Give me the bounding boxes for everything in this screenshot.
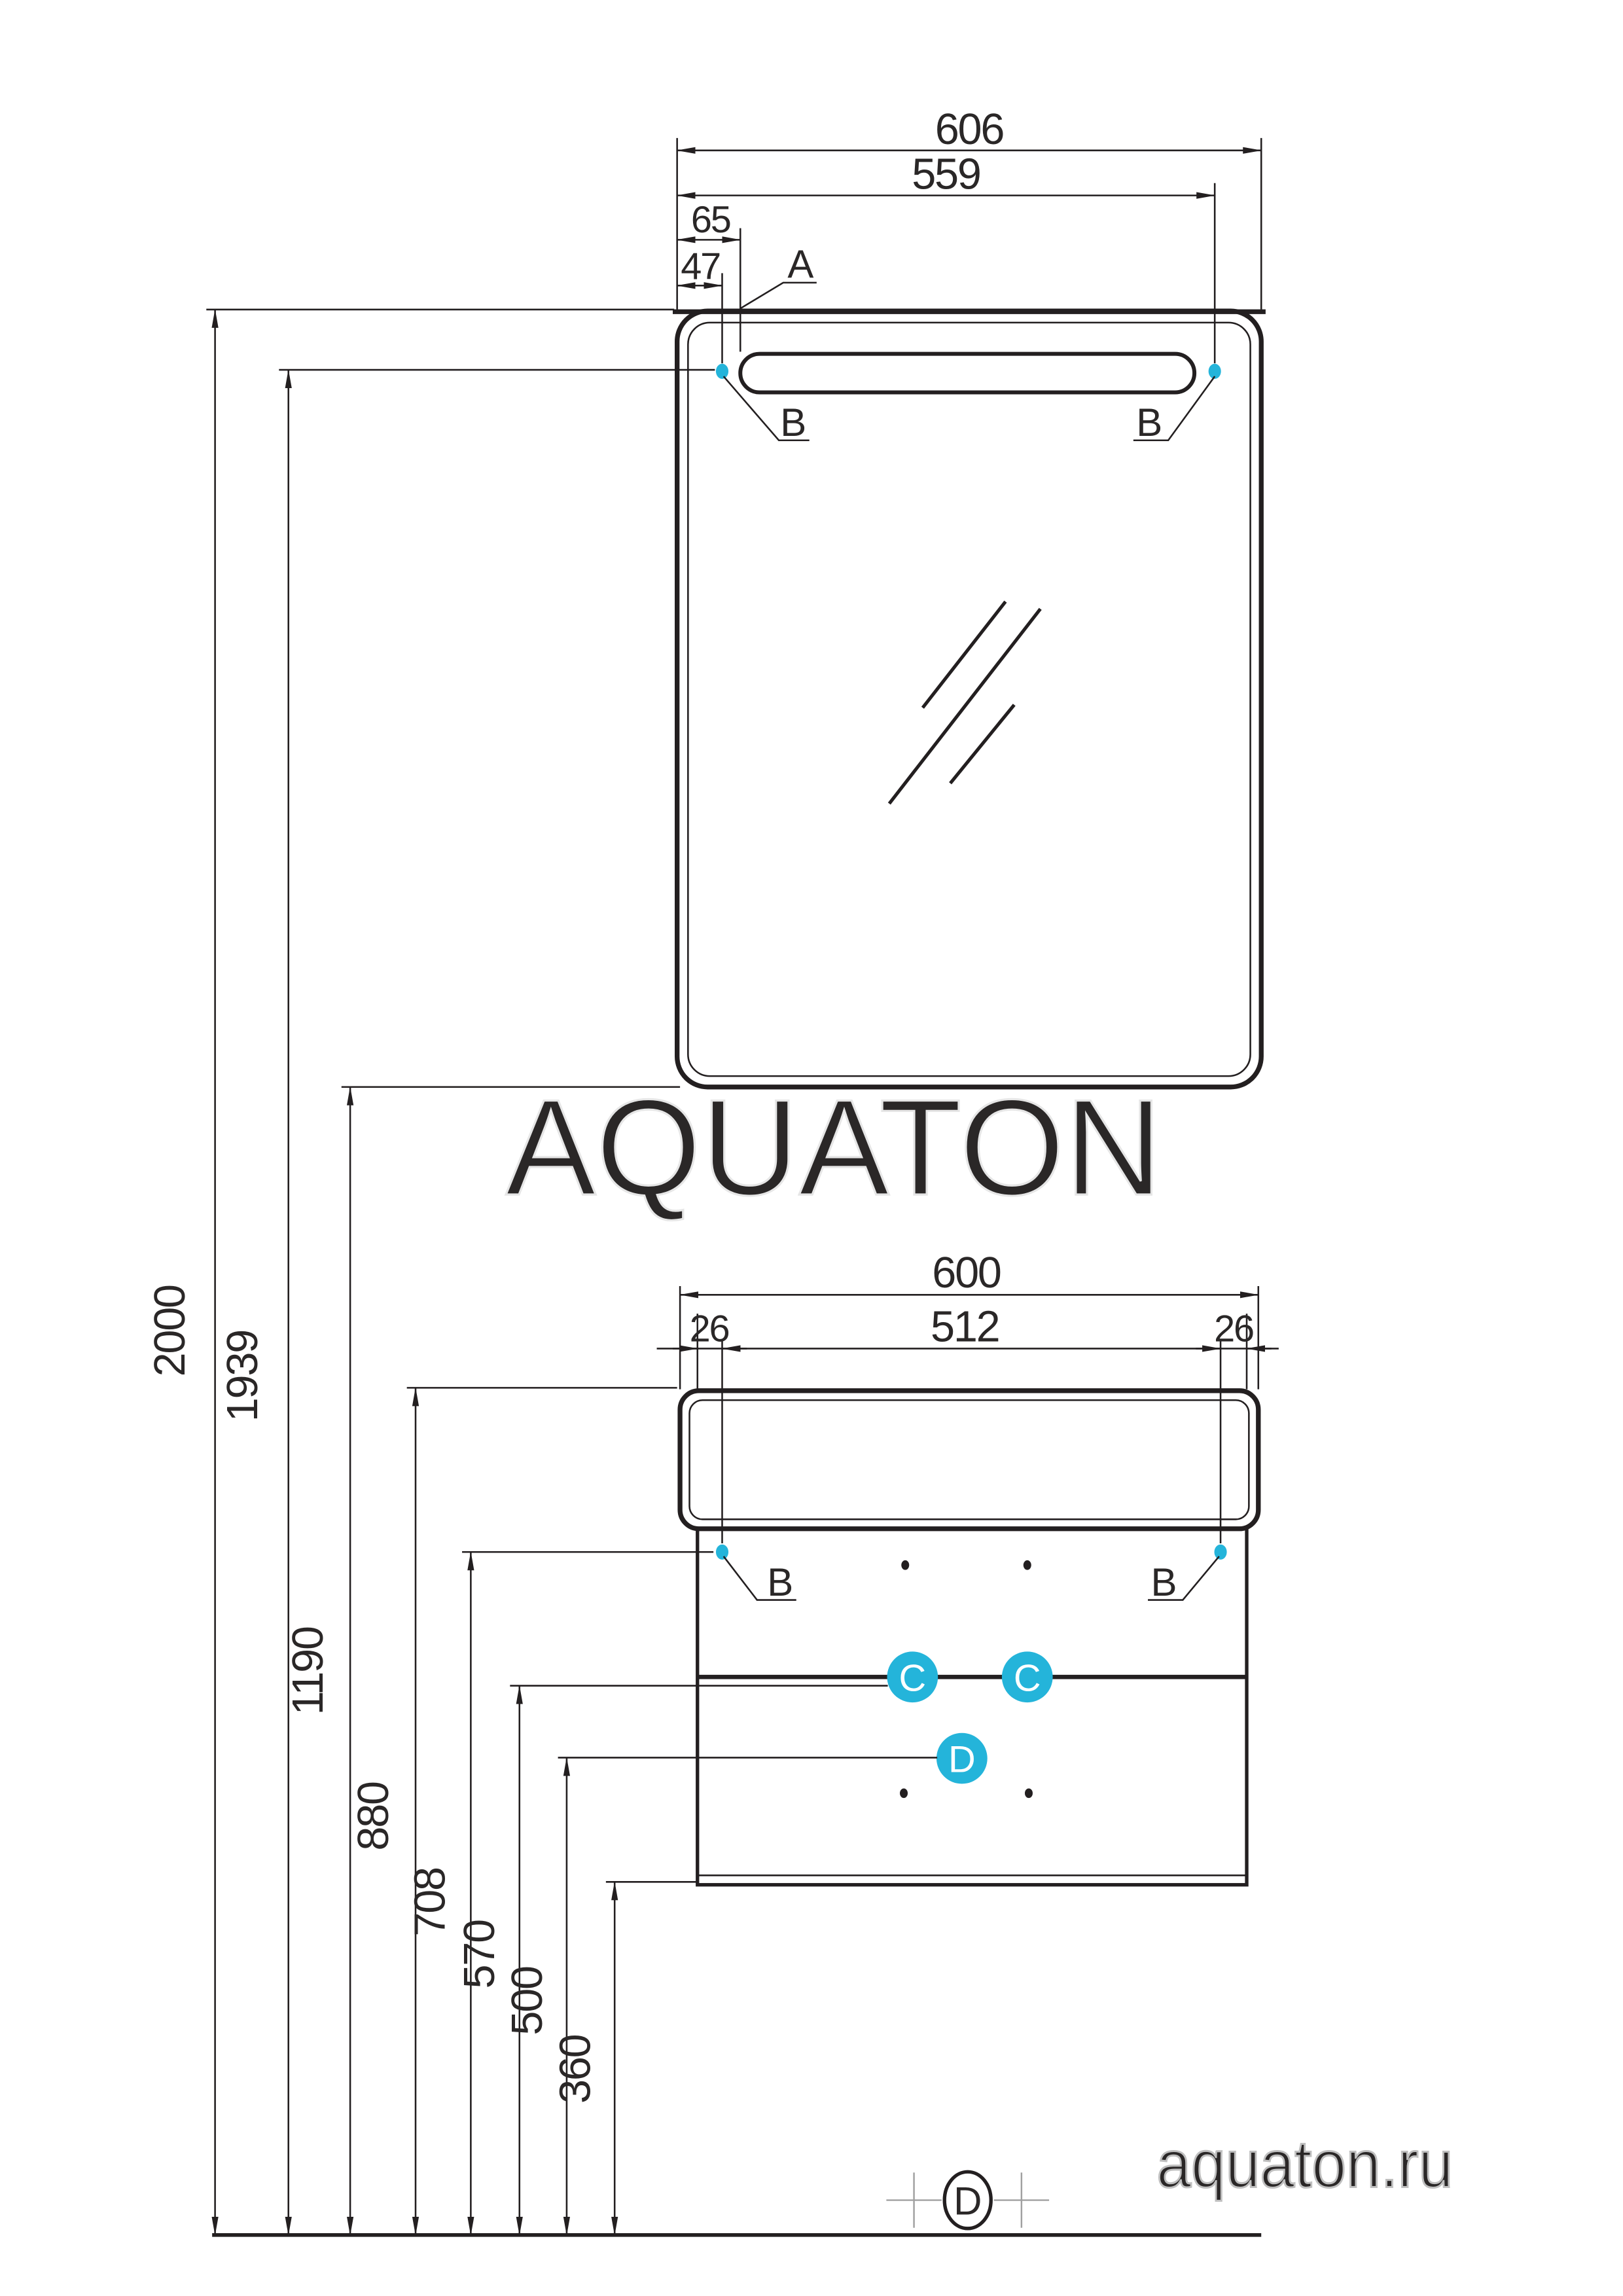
washbasin-rim-inner (690, 1400, 1249, 1519)
technical-drawing-page: AQUATON 606 559 65 (0, 0, 1623, 2296)
label-d: D (948, 1739, 976, 1781)
drawer-screw-dot (901, 1560, 909, 1570)
dim-label-26-left: 26 (690, 1308, 729, 1350)
drawer-screw-dot (1025, 1789, 1033, 1799)
mirror-shine-line (950, 705, 1014, 783)
dim-label-708: 708 (406, 1868, 454, 1937)
cabinet-fixing-point-left (716, 1545, 728, 1560)
floor-marker-d-label: D (954, 2179, 982, 2223)
dim-label-570: 570 (455, 1920, 504, 1989)
mirror-lamp-slot (740, 354, 1194, 393)
cabinet-front-view: C C D (680, 1391, 1258, 1885)
website-text: aquaton.ru (1156, 2127, 1453, 2202)
label-b-cabinet-right: B (1150, 1560, 1177, 1604)
dim-label-1190: 1190 (284, 1627, 332, 1715)
label-a: A (787, 242, 813, 286)
dim-label-606: 606 (935, 105, 1004, 154)
dim-label-1939: 1939 (219, 1331, 267, 1422)
watermark-text: AQUATON (506, 1071, 1163, 1224)
mirror-shine-line (923, 601, 1006, 708)
label-b-mirror-left: B (780, 401, 806, 444)
dim-label-512: 512 (931, 1302, 999, 1351)
label-b-mirror-right: B (1136, 401, 1162, 444)
label-b-cabinet-left: B (767, 1560, 793, 1604)
label-c-right: C (1014, 1657, 1041, 1699)
dim-label-2000: 2000 (146, 1285, 194, 1376)
drawing-svg: AQUATON 606 559 65 (0, 0, 1623, 2296)
leader-line-a (741, 283, 816, 308)
label-c-left: C (899, 1657, 927, 1699)
dim-label-559: 559 (912, 151, 980, 199)
cabinet-fixing-point-right (1215, 1545, 1227, 1560)
washbasin-rim-outer (680, 1391, 1258, 1529)
dim-label-500: 500 (503, 1967, 552, 2036)
dim-label-880: 880 (349, 1782, 398, 1851)
mirror-shine-line (889, 609, 1041, 804)
dim-label-360: 360 (551, 2035, 599, 2104)
mirror-fixing-point-left (716, 364, 728, 379)
drawer-screw-dot (1024, 1560, 1031, 1570)
drawer-screw-dot (900, 1789, 908, 1799)
dim-label-26-right: 26 (1214, 1308, 1253, 1350)
dim-label-600: 600 (932, 1249, 1001, 1297)
floor-and-footer: D aquaton.ru (212, 2127, 1453, 2235)
height-dimensions: 2000 1939 1190 880 708 570 500 360 (146, 310, 937, 2235)
dim-label-65: 65 (691, 199, 730, 241)
dim-label-47: 47 (681, 245, 720, 287)
